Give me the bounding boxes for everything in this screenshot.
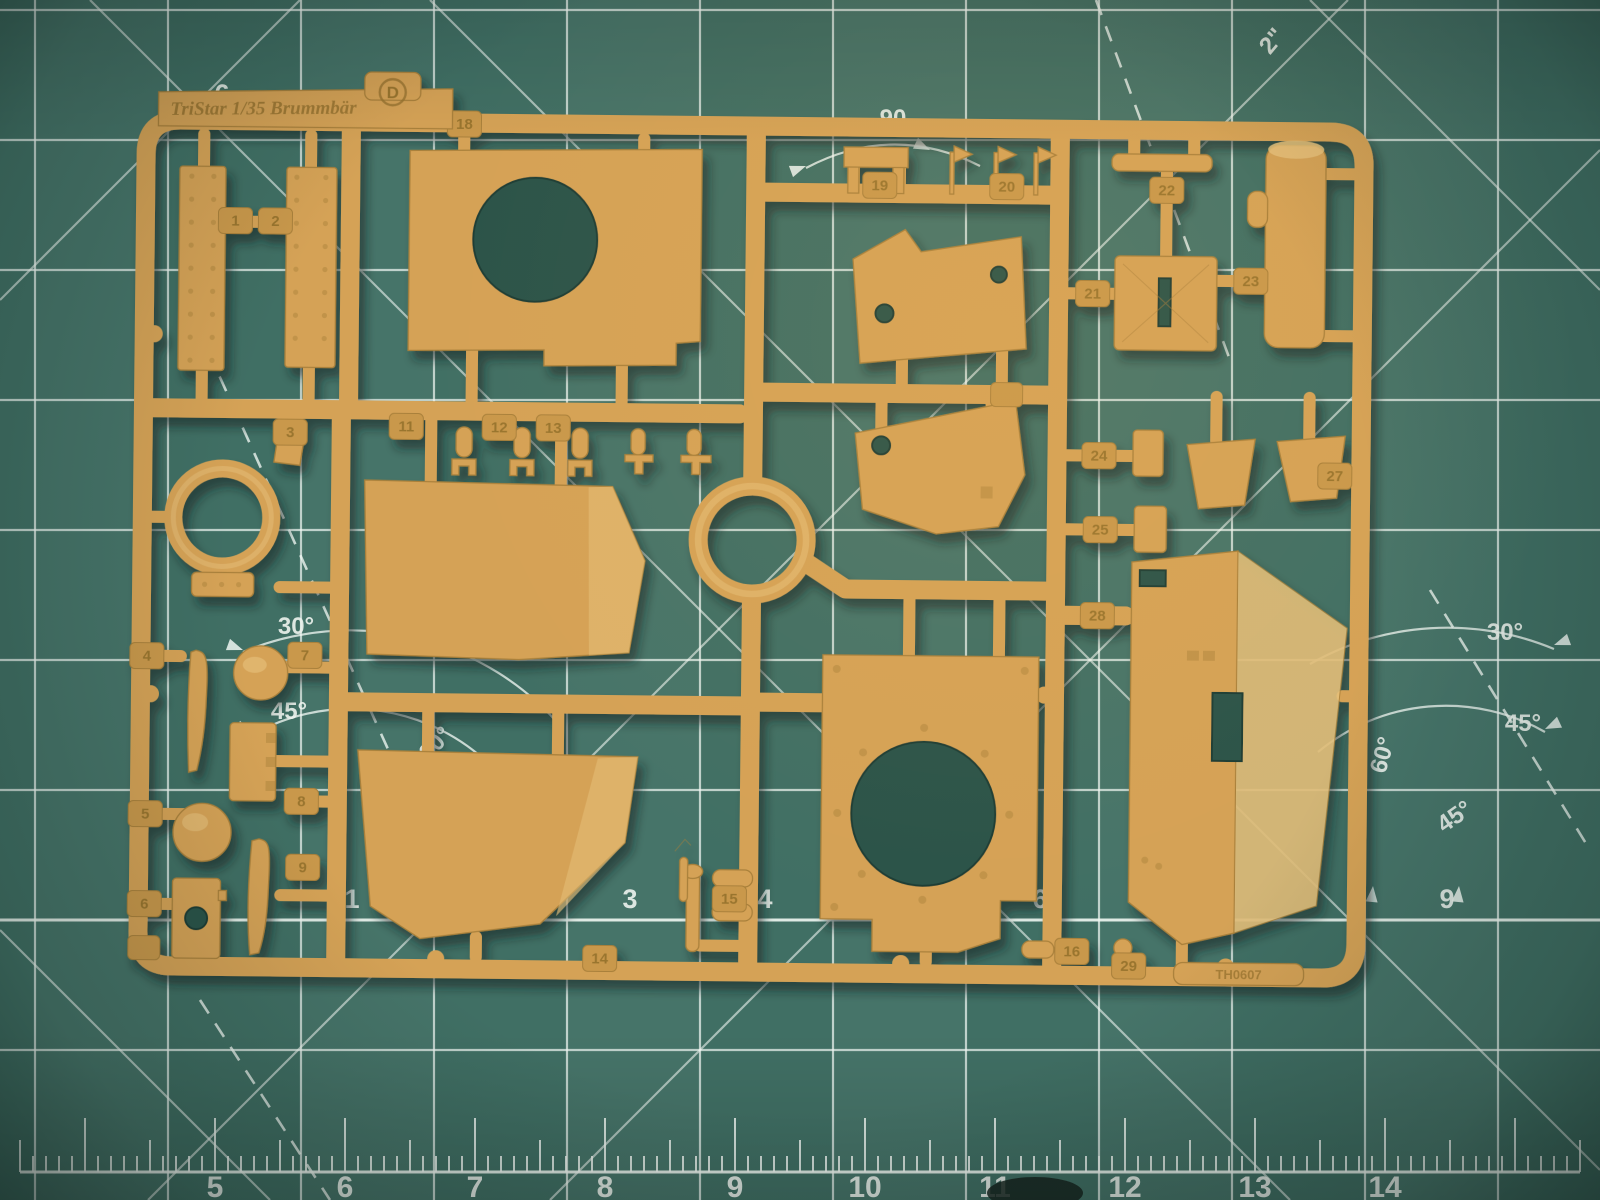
plate-hole <box>991 267 1007 283</box>
box-hole <box>185 907 207 929</box>
part-number-tag: 1 <box>218 207 252 233</box>
capsule-part <box>1022 941 1054 958</box>
photo-scene: 30°45°60°30°45°60°45° 90 2" 6 5678910111… <box>0 0 1600 1200</box>
part-number-tag: 19 <box>863 172 897 198</box>
part-number: 14 <box>591 950 609 967</box>
mold-stamp: TH0607 <box>1173 962 1303 985</box>
hinge-detail <box>265 781 275 791</box>
small-block-part <box>1134 506 1166 552</box>
part-number: 15 <box>721 891 738 908</box>
part-number: 6 <box>140 896 149 913</box>
part-number: 27 <box>1326 468 1343 485</box>
mid-ruler-number: 4 <box>757 884 772 914</box>
part-number: 25 <box>1092 522 1109 539</box>
pentagon-plate-part <box>852 229 1027 365</box>
part-number-tag: 23 <box>1234 268 1268 294</box>
part-number-tag: 5 <box>128 801 162 827</box>
part-number: 18 <box>456 116 473 133</box>
part-number-tag: 14 <box>583 945 617 971</box>
part-number: 4 <box>143 648 152 665</box>
tag-plate <box>991 383 1023 407</box>
part-number: 5 <box>141 806 150 823</box>
part-number: 29 <box>1120 958 1137 975</box>
angle-label: 30° <box>1487 619 1523 646</box>
clamp-detail <box>1203 651 1215 661</box>
top-panel-hole <box>473 177 598 302</box>
part-number-tag: 16 <box>1055 938 1089 964</box>
blank-tag <box>128 936 160 960</box>
cylinder-part <box>1264 145 1326 348</box>
part-number: 19 <box>871 177 888 194</box>
sprue-letter: D <box>387 83 399 102</box>
small-hook-part <box>572 428 588 458</box>
part-number-tag: 3 <box>273 419 307 445</box>
ruler-number: 9 <box>727 1171 744 1200</box>
mid-ruler-number: 1 <box>344 884 359 914</box>
part-number: 21 <box>1084 285 1101 302</box>
small-block-part <box>1133 430 1163 476</box>
ball-part <box>173 803 232 862</box>
part-number-tag: 22 <box>1150 177 1184 203</box>
part-number: 7 <box>301 647 310 664</box>
part-number-tag: 11 <box>389 413 423 439</box>
angle-label: 30° <box>278 613 314 640</box>
part-number-tag: 7 <box>288 642 322 668</box>
part-number: 13 <box>545 420 562 437</box>
plate-hole <box>875 304 893 322</box>
ruler-number: 6 <box>337 1171 354 1200</box>
ruler-number: 10 <box>848 1171 881 1200</box>
track-part-left <box>178 166 226 370</box>
mat-tint <box>1365 0 1498 1200</box>
part-number: 20 <box>998 179 1015 196</box>
bottom-plate-hole <box>850 741 996 887</box>
plate-hole <box>872 436 890 454</box>
ruler-number: 7 <box>467 1171 484 1200</box>
part-number: 11 <box>398 418 414 435</box>
mid-ruler-number: 3 <box>622 884 637 914</box>
mid-ruler-number: 9 <box>1439 884 1454 914</box>
part-number-tag: 27 <box>1318 463 1352 489</box>
part-number: 12 <box>491 419 508 436</box>
part-number: 2 <box>271 213 280 230</box>
brand-text: TriStar 1/35 Brummbär <box>170 98 357 120</box>
hinge-detail <box>266 757 276 767</box>
ruler-number: 14 <box>1368 1171 1402 1200</box>
cylinder-handle <box>1247 191 1267 227</box>
part-number-tag: 21 <box>1076 280 1110 306</box>
ruler-number: 13 <box>1238 1171 1271 1200</box>
clamp-part <box>687 429 701 455</box>
part-number-tag: 4 <box>130 643 164 669</box>
clamp-part <box>631 429 645 455</box>
mold-stamp-text: TH0607 <box>1215 967 1261 982</box>
tag-plate <box>128 936 160 960</box>
dome-part <box>233 646 288 701</box>
part-number: 9 <box>298 859 307 876</box>
part-number: 8 <box>297 793 306 810</box>
part-number-tag: 12 <box>482 414 516 440</box>
small-hook-part <box>456 427 472 457</box>
part-number-tag: 8 <box>284 788 318 814</box>
plate-notch <box>981 486 993 498</box>
part-number-tag: 25 <box>1083 516 1117 542</box>
part-number: 22 <box>1158 182 1175 199</box>
part-number-tag: 9 <box>286 854 320 880</box>
part-number: 24 <box>1091 448 1109 465</box>
angle-label: 45° <box>271 698 307 725</box>
part-number-tag: 24 <box>1082 442 1116 468</box>
blank-tag <box>991 383 1023 407</box>
part-number: 28 <box>1089 608 1106 625</box>
part-number-tag: 6 <box>127 890 161 916</box>
bar-part <box>1112 154 1212 172</box>
hinge-detail <box>266 733 276 743</box>
part-number: 3 <box>286 424 295 441</box>
sight-rod-part <box>679 857 687 901</box>
part-number: 16 <box>1063 943 1080 960</box>
part-number-tag: 28 <box>1080 602 1114 628</box>
capsule-part <box>712 870 752 887</box>
panel-cutout <box>1140 570 1166 586</box>
ruler-number: 8 <box>597 1171 614 1200</box>
part-number: 23 <box>1242 273 1259 290</box>
panel-opening <box>1212 693 1243 761</box>
box-nub <box>218 890 226 900</box>
part-number-tag: 2 <box>258 208 292 234</box>
part-number-tag: 29 <box>1112 953 1146 979</box>
part-number-tag: 20 <box>990 173 1024 199</box>
angle-label: 45° <box>1505 710 1541 737</box>
ruler-number: 12 <box>1108 1171 1141 1200</box>
trapezoid-part <box>1186 439 1255 510</box>
part-number-tag: 15 <box>712 886 746 912</box>
ruler-number: 5 <box>207 1171 224 1200</box>
part-number-tag: 13 <box>536 415 570 441</box>
part-number: 1 <box>231 213 240 230</box>
clamp-detail <box>1187 651 1199 661</box>
